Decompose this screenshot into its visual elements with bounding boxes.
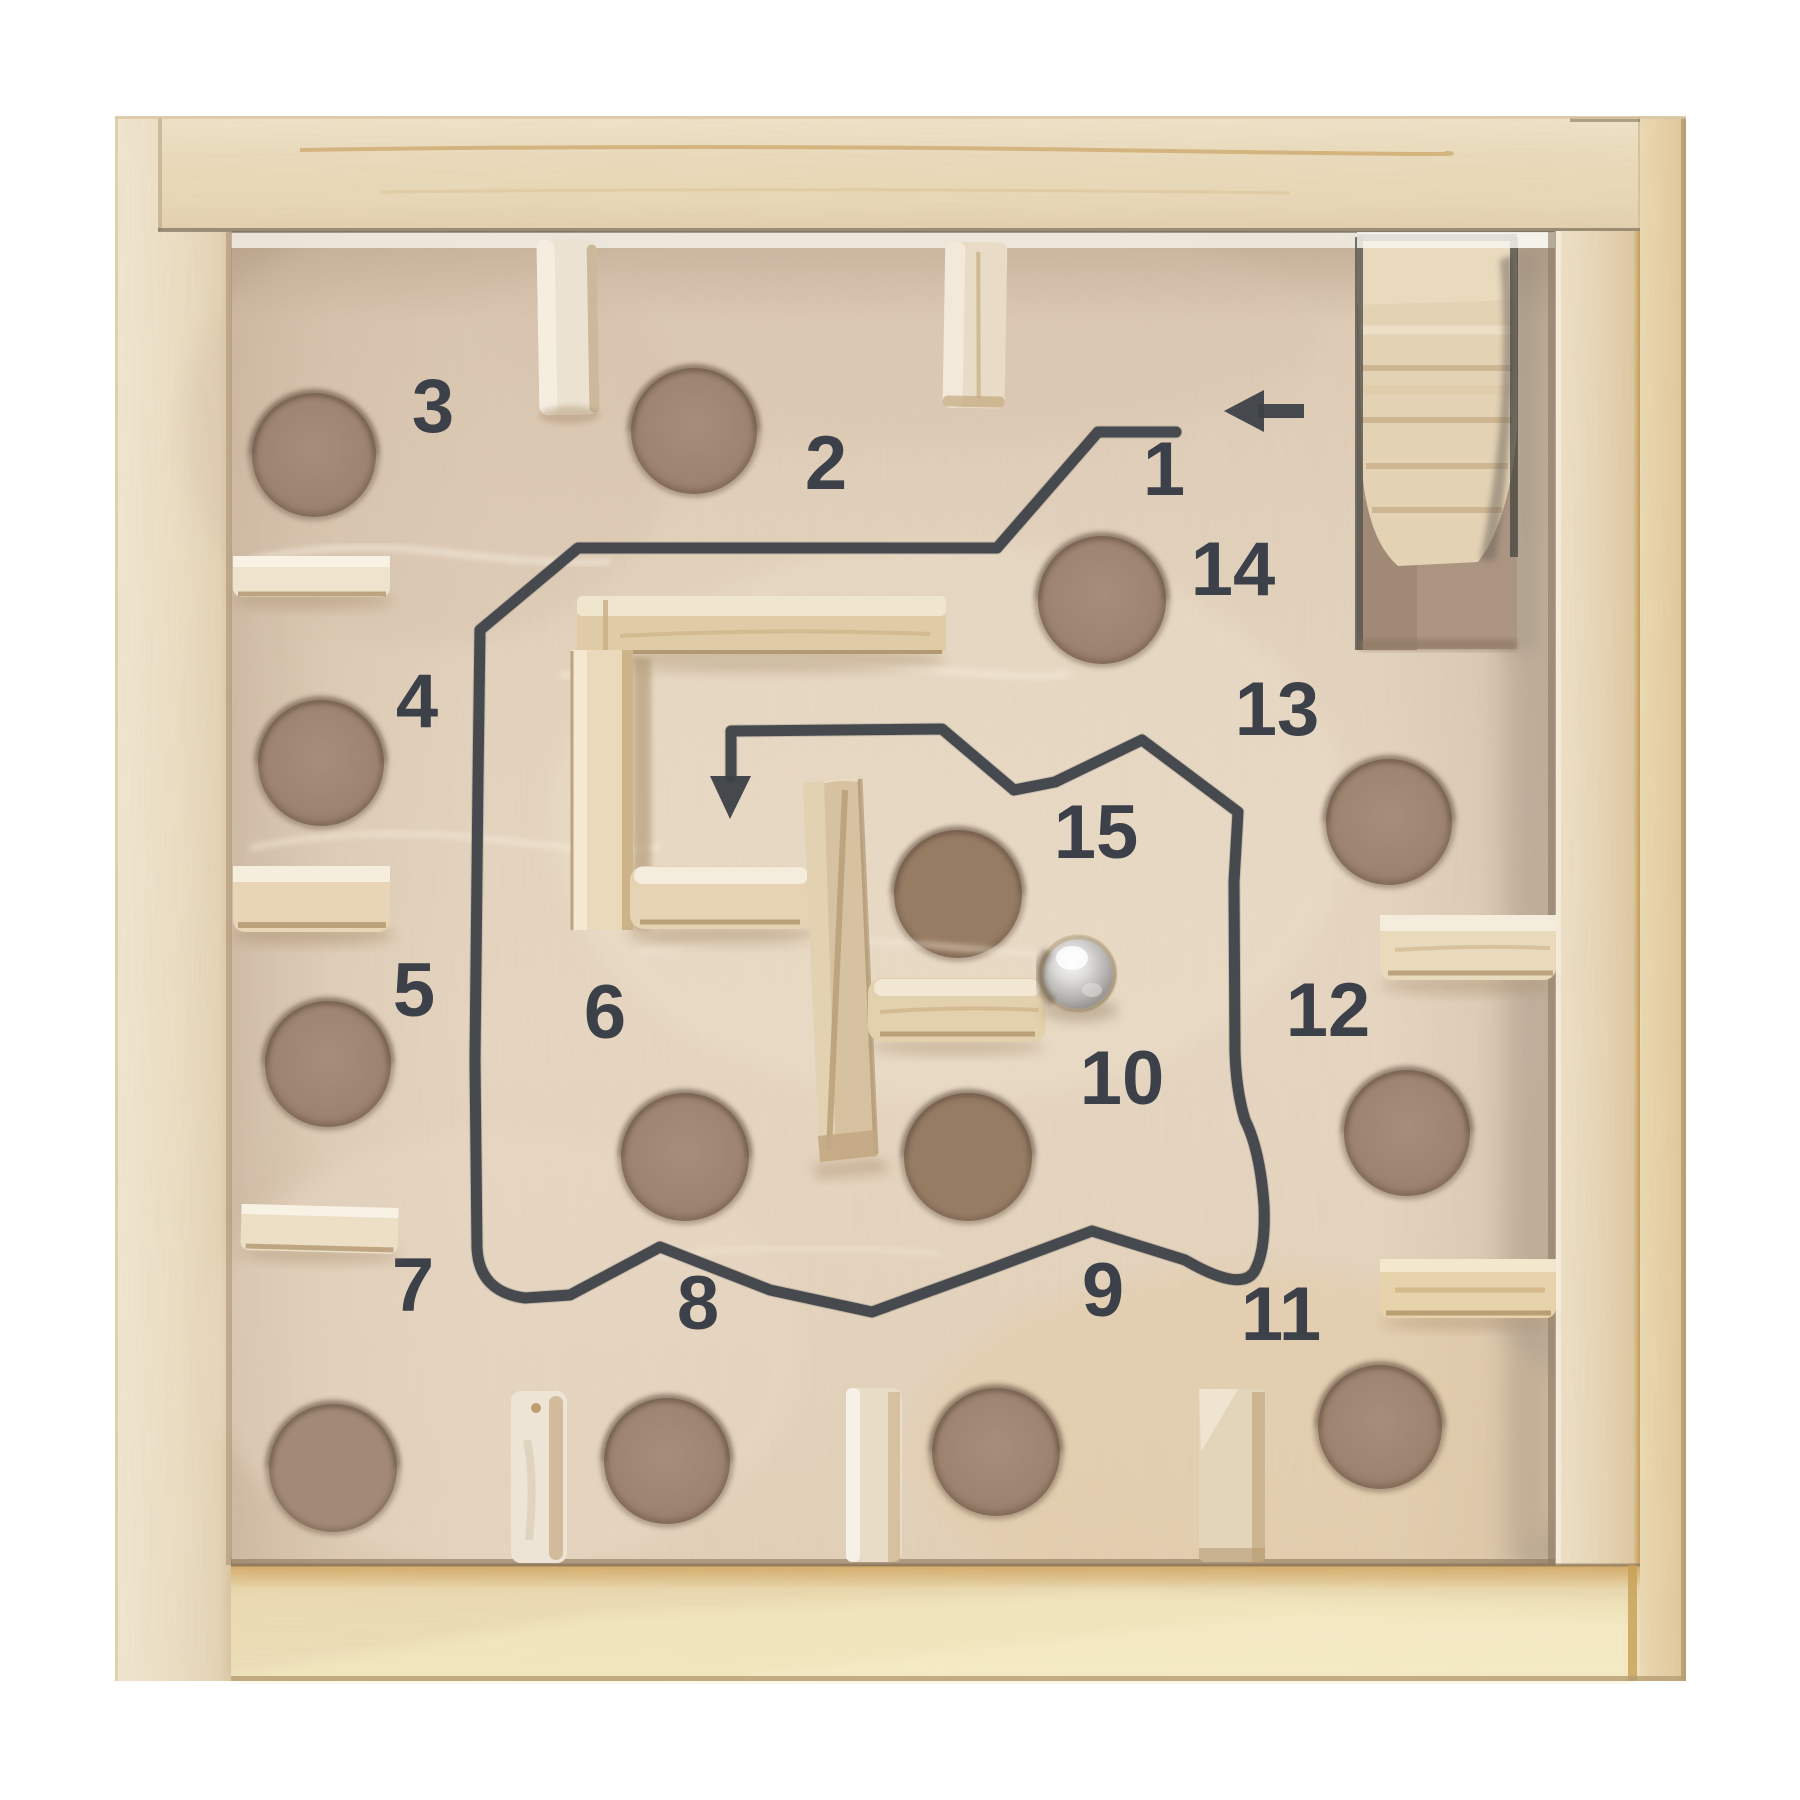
svg-text:5: 5 xyxy=(393,948,435,1033)
svg-text:9: 9 xyxy=(1082,1248,1124,1333)
svg-text:11: 11 xyxy=(1241,1272,1321,1357)
svg-text:14: 14 xyxy=(1191,527,1276,612)
svg-text:13: 13 xyxy=(1235,667,1320,752)
svg-text:10: 10 xyxy=(1080,1036,1165,1121)
svg-text:2: 2 xyxy=(805,421,847,506)
svg-text:15: 15 xyxy=(1054,790,1139,875)
svg-text:8: 8 xyxy=(677,1261,719,1346)
svg-text:4: 4 xyxy=(396,659,438,744)
svg-text:12: 12 xyxy=(1286,968,1371,1053)
svg-text:6: 6 xyxy=(584,970,626,1055)
svg-text:3: 3 xyxy=(412,364,454,449)
svg-text:1: 1 xyxy=(1143,427,1185,512)
